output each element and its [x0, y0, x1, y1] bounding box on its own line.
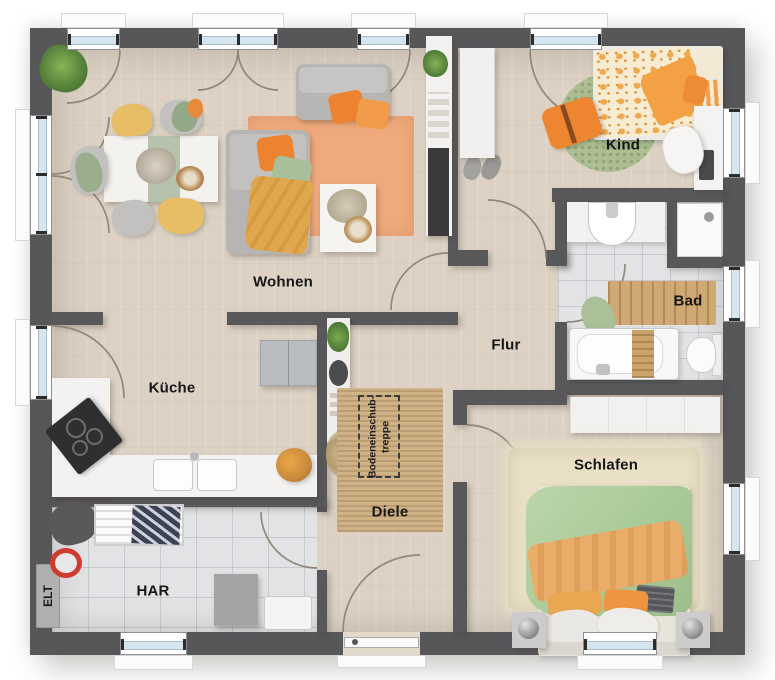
- cooktop-ring3: [72, 440, 88, 456]
- lamp-right: [682, 618, 703, 639]
- wall-shower-south: [667, 256, 723, 268]
- window-schlafen-right: [723, 483, 745, 555]
- window-sill: [192, 13, 284, 28]
- attic-stairs-outline: Bodeneinschub- treppe: [358, 395, 400, 478]
- window-sill: [114, 655, 193, 670]
- window-hinge-mark: [729, 267, 740, 270]
- window-sill: [745, 102, 760, 184]
- room-label-bad: Bad: [674, 293, 703, 310]
- shower-drain: [704, 212, 714, 222]
- window-glass: [70, 36, 117, 45]
- window-hinge-mark: [729, 109, 740, 112]
- window-glass: [731, 486, 740, 552]
- window-sill: [745, 260, 760, 328]
- window-schlafen-bottom: [583, 632, 657, 655]
- heater-unit: [264, 596, 312, 630]
- throw-mustard: [244, 175, 313, 255]
- wardrobe-schlafen: [570, 397, 720, 433]
- kitchen-sink-right: [197, 459, 237, 491]
- pillow-orange-sofa2: [355, 98, 391, 130]
- window-hinge-mark: [36, 326, 47, 329]
- window-sill: [15, 109, 30, 241]
- window-glass: [123, 641, 184, 650]
- window-bad: [723, 266, 745, 322]
- window-sill: [577, 655, 663, 670]
- room-label-har: HAR: [136, 583, 169, 600]
- room-label-schlafen: Schlafen: [574, 457, 638, 474]
- wall-kueche-east: [317, 313, 327, 512]
- window-hinge-mark: [36, 231, 47, 234]
- window-hinge-mark: [653, 639, 656, 650]
- window-hinge-mark: [121, 639, 124, 650]
- shelf-books: [428, 92, 449, 138]
- shelf-plant: [423, 50, 448, 77]
- window-sill: [15, 319, 30, 406]
- window-wohnen-top3: [357, 28, 410, 50]
- window-hinge-mark: [584, 639, 587, 650]
- window-sill: [351, 13, 416, 28]
- lamp-left: [518, 618, 539, 639]
- window-glass: [38, 328, 47, 397]
- window-glass: [586, 641, 654, 650]
- floor-plan: Bodeneinschub- treppe: [0, 0, 775, 680]
- attic-stairs-label-line1: Bodeneinschub-: [366, 395, 378, 477]
- room-label-elt-box: ELT: [36, 564, 60, 628]
- bath-faucet: [606, 202, 618, 218]
- wall-diele-schlafen-lower: [453, 482, 467, 632]
- kitchen-faucet: [190, 452, 199, 461]
- front-door-handle: [352, 639, 358, 645]
- wall-wohnen-south-west: [52, 312, 103, 325]
- window-hinge-mark: [729, 484, 740, 487]
- window-hinge-mark: [729, 174, 740, 177]
- sofa-back-cushions: [299, 67, 387, 93]
- wall-bad-south: [555, 380, 723, 395]
- window-hinge-mark: [116, 34, 119, 45]
- window-hinge-mark: [36, 116, 47, 119]
- decor-tray: [344, 216, 372, 243]
- window-sill: [745, 477, 760, 561]
- wall-kind-bad: [552, 188, 723, 202]
- room-label-wohnen: Wohnen: [253, 274, 313, 291]
- window-hinge-mark: [598, 34, 601, 45]
- window-hinge-mark: [729, 551, 740, 554]
- wall-har-east: [317, 570, 327, 632]
- window-glass: [360, 36, 407, 45]
- room-label-kueche: Küche: [149, 380, 196, 397]
- window-kind-right: [723, 108, 745, 178]
- wall-flur-schlafen: [453, 390, 567, 405]
- window-hinge-mark: [199, 34, 202, 45]
- hall-shelf-plant: [327, 322, 349, 352]
- room-label-kind: Kind: [606, 137, 640, 154]
- room-label-elt: ELT: [41, 585, 55, 607]
- wall-kind-door-stub: [448, 250, 488, 266]
- window-kueche: [30, 325, 52, 400]
- window-hinge-mark: [36, 396, 47, 399]
- window-hinge-mark: [729, 318, 740, 321]
- attic-stairs-label: Bodeneinschub- treppe: [366, 391, 391, 483]
- wardrobe-kind: [460, 48, 495, 158]
- window-sill: [61, 13, 126, 28]
- laundry-on-rack: [131, 505, 180, 545]
- window-hinge-mark: [531, 34, 534, 45]
- wall-shower-west: [667, 202, 677, 258]
- window-hinge-mark: [183, 639, 186, 650]
- bathtub-faucet: [596, 364, 610, 375]
- wall-diele-schlafen-jamb: [453, 405, 467, 425]
- bathtub-caddy: [632, 330, 654, 378]
- window-hinge-mark: [358, 34, 361, 45]
- room-label-diele: Diele: [372, 504, 409, 521]
- fruit-basket: [276, 448, 312, 482]
- decor-bowl: [176, 166, 204, 191]
- attic-stairs-label-line2: treppe: [379, 420, 391, 452]
- toilet-bowl: [686, 337, 716, 373]
- window-glass: [731, 111, 740, 175]
- pillow-kind-1: [696, 47, 724, 79]
- chair-yellow-north: [110, 102, 153, 138]
- kitchen-sink-left: [153, 459, 193, 491]
- window-hinge-mark: [68, 34, 71, 45]
- room-label-flur: Flur: [491, 337, 520, 354]
- window-kind-top: [530, 28, 602, 50]
- window-glass: [731, 269, 740, 319]
- window-hinge-mark: [274, 34, 277, 45]
- front-door-threshold: [337, 655, 426, 668]
- storage-box: [214, 574, 258, 626]
- terrace-door-wohnen: [30, 115, 52, 235]
- window-hinge-mark: [237, 34, 240, 45]
- window-hinge-mark: [406, 34, 409, 45]
- cooktop-ring2: [86, 428, 103, 445]
- window-sill: [524, 13, 608, 28]
- window-wohnen-top1: [67, 28, 120, 50]
- window-wohnen-top2: [198, 28, 278, 50]
- shower-tray: [677, 203, 722, 257]
- wall-bad-west-upper: [555, 202, 567, 266]
- fridge-door-seam: [288, 340, 289, 386]
- television: [428, 148, 449, 236]
- window-har: [120, 632, 187, 655]
- window-hinge-mark: [36, 173, 47, 176]
- hall-shelf-wok: [329, 360, 348, 386]
- window-glass: [533, 36, 599, 45]
